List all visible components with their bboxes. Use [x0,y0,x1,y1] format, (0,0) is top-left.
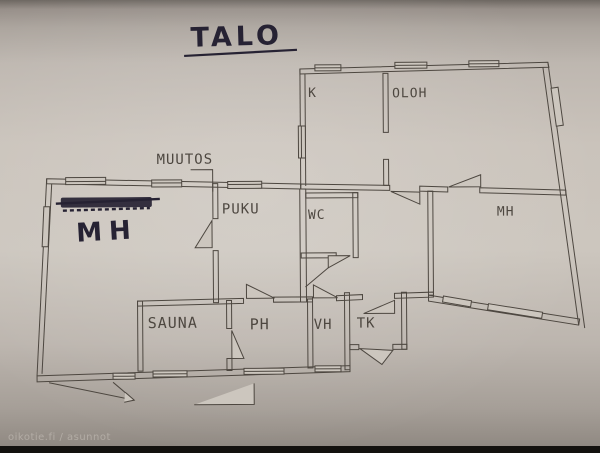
wall-living-bottom-b [420,186,448,192]
wall-bottom-left [37,366,350,382]
window [298,126,305,158]
window [551,87,563,126]
wall-kitchen-divider-stub [384,159,389,185]
wall-kitchen-divider [383,73,388,132]
wall-puku-left-upper [213,184,218,219]
door-sauna [232,330,244,358]
door-terrace [49,382,134,403]
entry-step-outline [194,383,254,404]
wall-sauna-ph-lower [227,358,232,370]
room-label-sauna: SAUNA [148,314,198,332]
window [244,368,284,374]
room-label-wc: WC [308,208,326,223]
wall-puku-right [300,189,307,302]
room-label-tk: TK [357,315,376,331]
window [228,181,262,188]
wall-living-bottom-a [301,183,390,191]
wall-tk-bottom-a [350,345,359,350]
window [395,62,427,68]
wall-living-bottom-c [480,187,566,196]
watermark: oikotie.fi / asunnot [8,432,111,443]
window [315,65,341,71]
plan-group: K OLOH PUKU WC MH SAUNA PH VH TK MUUTOS … [35,18,586,406]
muutos-label: MUUTOS [156,152,213,168]
wall-ph-vh [308,299,313,368]
page-title: TALO [190,20,283,54]
wall-tk-right [401,292,406,349]
photo-bottom-border [0,446,600,453]
room-label-kitchen: K [308,86,317,101]
wall-band-a [138,298,244,306]
handwritten-annotations: TALO MH [55,20,299,249]
window [152,180,182,187]
floor-plan-photo: K OLOH PUKU WC MH SAUNA PH VH TK MUUTOS … [0,0,600,453]
wall-sauna-ph-upper [227,300,232,328]
room-label-ph: PH [250,315,270,333]
room-label-living: OLOH [392,86,427,101]
door-tk-inner [364,300,395,313]
door-wc [328,256,350,268]
room-label-puku: PUKU [222,201,260,217]
wall-band-d [394,292,433,298]
floor-plan-drawing: K OLOH PUKU WC MH SAUNA PH VH TK MUUTOS … [0,0,600,453]
wall-vh-right [344,293,350,370]
window [488,303,543,318]
interior-walls [136,72,567,371]
window [469,61,499,67]
door-puku-to-ph [246,284,274,298]
wall-puku-left-lower [213,251,218,303]
window [113,373,135,379]
door-tk-outer [360,348,393,364]
door-wc-leaf [305,268,328,287]
window [315,366,341,372]
wall-sauna-left [138,301,143,371]
scribble-group [56,197,160,211]
wall-wc-right [353,193,358,258]
handwritten-bedroom-label: MH [75,215,138,249]
wall-hall-right [428,191,434,295]
window [153,371,187,377]
door-living-to-bedroom [449,175,481,187]
room-label-vh: VH [314,317,333,333]
wall-wc-top [306,193,358,198]
door-puku-entry [195,221,212,248]
title-group: TALO [183,20,297,56]
window [66,177,106,184]
room-label-bedroom-right: MH [497,205,515,220]
door-vh [313,285,337,298]
wall-tk-bottom-b [393,344,407,349]
scribble-underline [63,208,150,211]
door-hall-to-living [391,191,420,204]
muutos-leader-line [191,170,213,192]
